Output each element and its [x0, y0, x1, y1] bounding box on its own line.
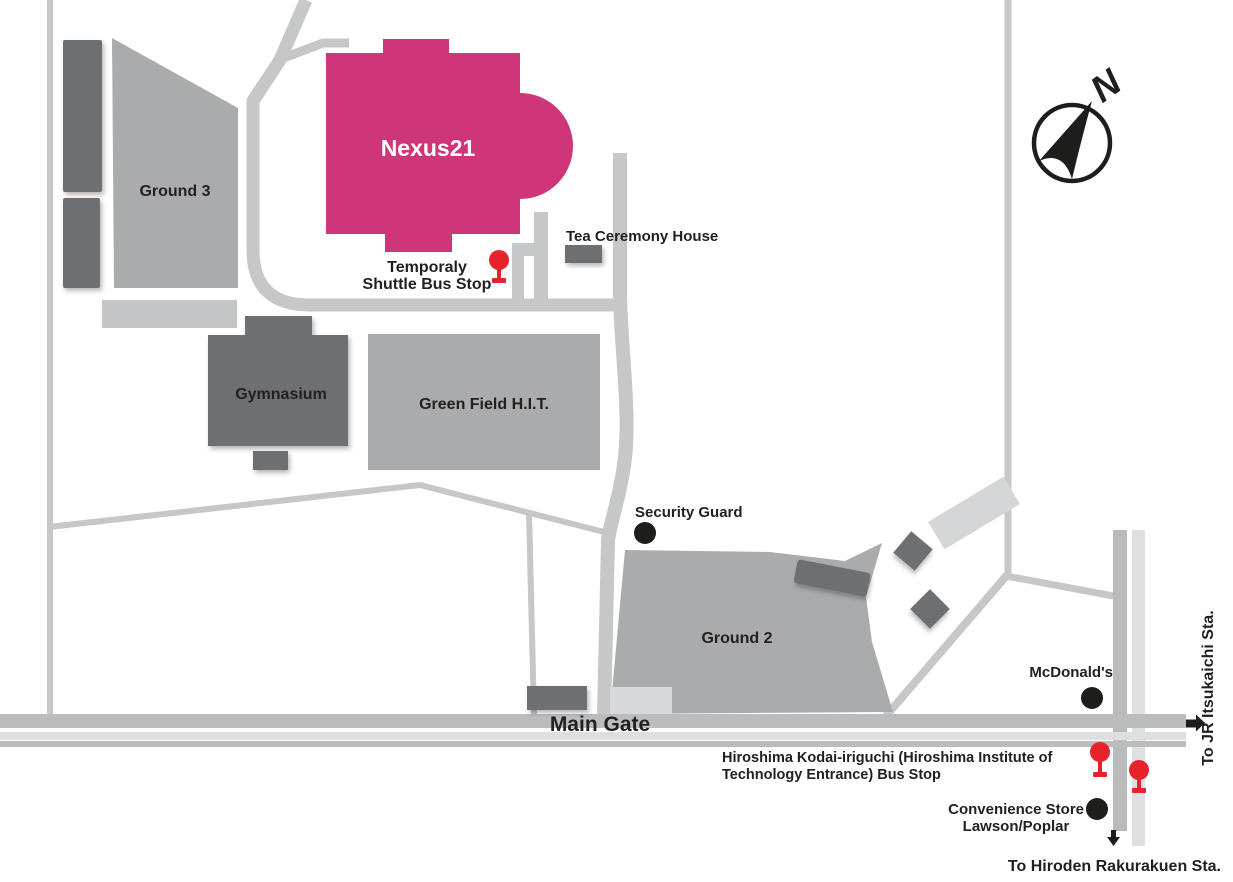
pin-head: [1090, 742, 1110, 762]
road-gate-branch-vertical: [529, 512, 534, 716]
label-ground3: Ground 3: [139, 183, 210, 200]
pin-head: [489, 250, 509, 270]
label-bus-stop-line2: Technology Entrance) Bus Stop: [722, 767, 941, 783]
label-security-guard: Security Guard: [635, 504, 743, 521]
rakurakuen-down-arrow: [1107, 830, 1120, 846]
footpath-tall: [534, 212, 548, 304]
ground3-side-buildings: [63, 40, 102, 288]
label-main-gate: Main Gate: [550, 713, 650, 736]
label-mcdonalds: McDonald's: [1029, 664, 1113, 681]
road-rakurakuen-avenue-west: [1113, 530, 1127, 831]
main-gate-band-south: [0, 741, 1186, 747]
temporaly-shuttle-bus-stop-pin: [489, 250, 509, 283]
label-bus-stop-line1: Hiroshima Kodai-iriguchi (Hiroshima Inst…: [722, 750, 1052, 766]
gymnasium-north-wing: [245, 316, 312, 338]
gate-side-building: [527, 686, 587, 710]
road-junction-gate-diagonal: [886, 575, 1007, 716]
security-guard-dot: [634, 522, 656, 544]
road-rakurakuen-avenue-east: [1132, 530, 1145, 846]
footpath-top-connector: [512, 243, 548, 256]
label-convenience-line2: Lawson/Poplar: [963, 818, 1070, 835]
label-to-hiroden: To Hiroden Rakurakuen Sta.: [1008, 858, 1221, 875]
label-nexus21: Nexus21: [381, 135, 476, 161]
kodai-iriguchi-bus-stop-pin-west: [1090, 742, 1110, 777]
convenience-store-dot: [1086, 798, 1108, 820]
campus-map: N Ground 3 Nexus21 Tea Ceremony House Te…: [0, 0, 1233, 882]
nexus21-south-wing: [385, 233, 452, 252]
label-to-jr: To JR Itsukaichi Sta.: [1200, 610, 1217, 765]
label-tea-ceremony-house: Tea Ceremony House: [566, 228, 718, 245]
parking-strip: [102, 300, 237, 328]
label-shuttle-stop-line2: Shuttle Bus Stop: [363, 276, 492, 293]
pin-head: [1129, 760, 1149, 780]
gymnasium-south-annex: [253, 451, 288, 470]
ground2-entrance-pad: [610, 687, 672, 714]
nexus21-north-wing: [383, 39, 449, 55]
compass-rose: N: [1034, 60, 1130, 181]
label-green-field: Green Field H.I.T.: [419, 396, 549, 413]
mcdonalds-dot: [1081, 687, 1103, 709]
small-building-diamond-north: [893, 531, 932, 570]
small-building-diamond-south: [910, 589, 950, 629]
label-convenience-line1: Convenience Store: [948, 801, 1084, 818]
road-junction-east-link: [1006, 576, 1124, 598]
label-ground2: Ground 2: [701, 630, 772, 647]
compass-north-label: N: [1083, 60, 1130, 110]
building-ground3: [112, 38, 238, 288]
side-building-north: [63, 40, 102, 192]
label-gymnasium: Gymnasium: [235, 386, 327, 403]
building-tea-ceremony-house: [565, 245, 602, 263]
label-shuttle-stop-line1: Temporaly: [387, 259, 467, 276]
side-building-south: [63, 198, 100, 288]
